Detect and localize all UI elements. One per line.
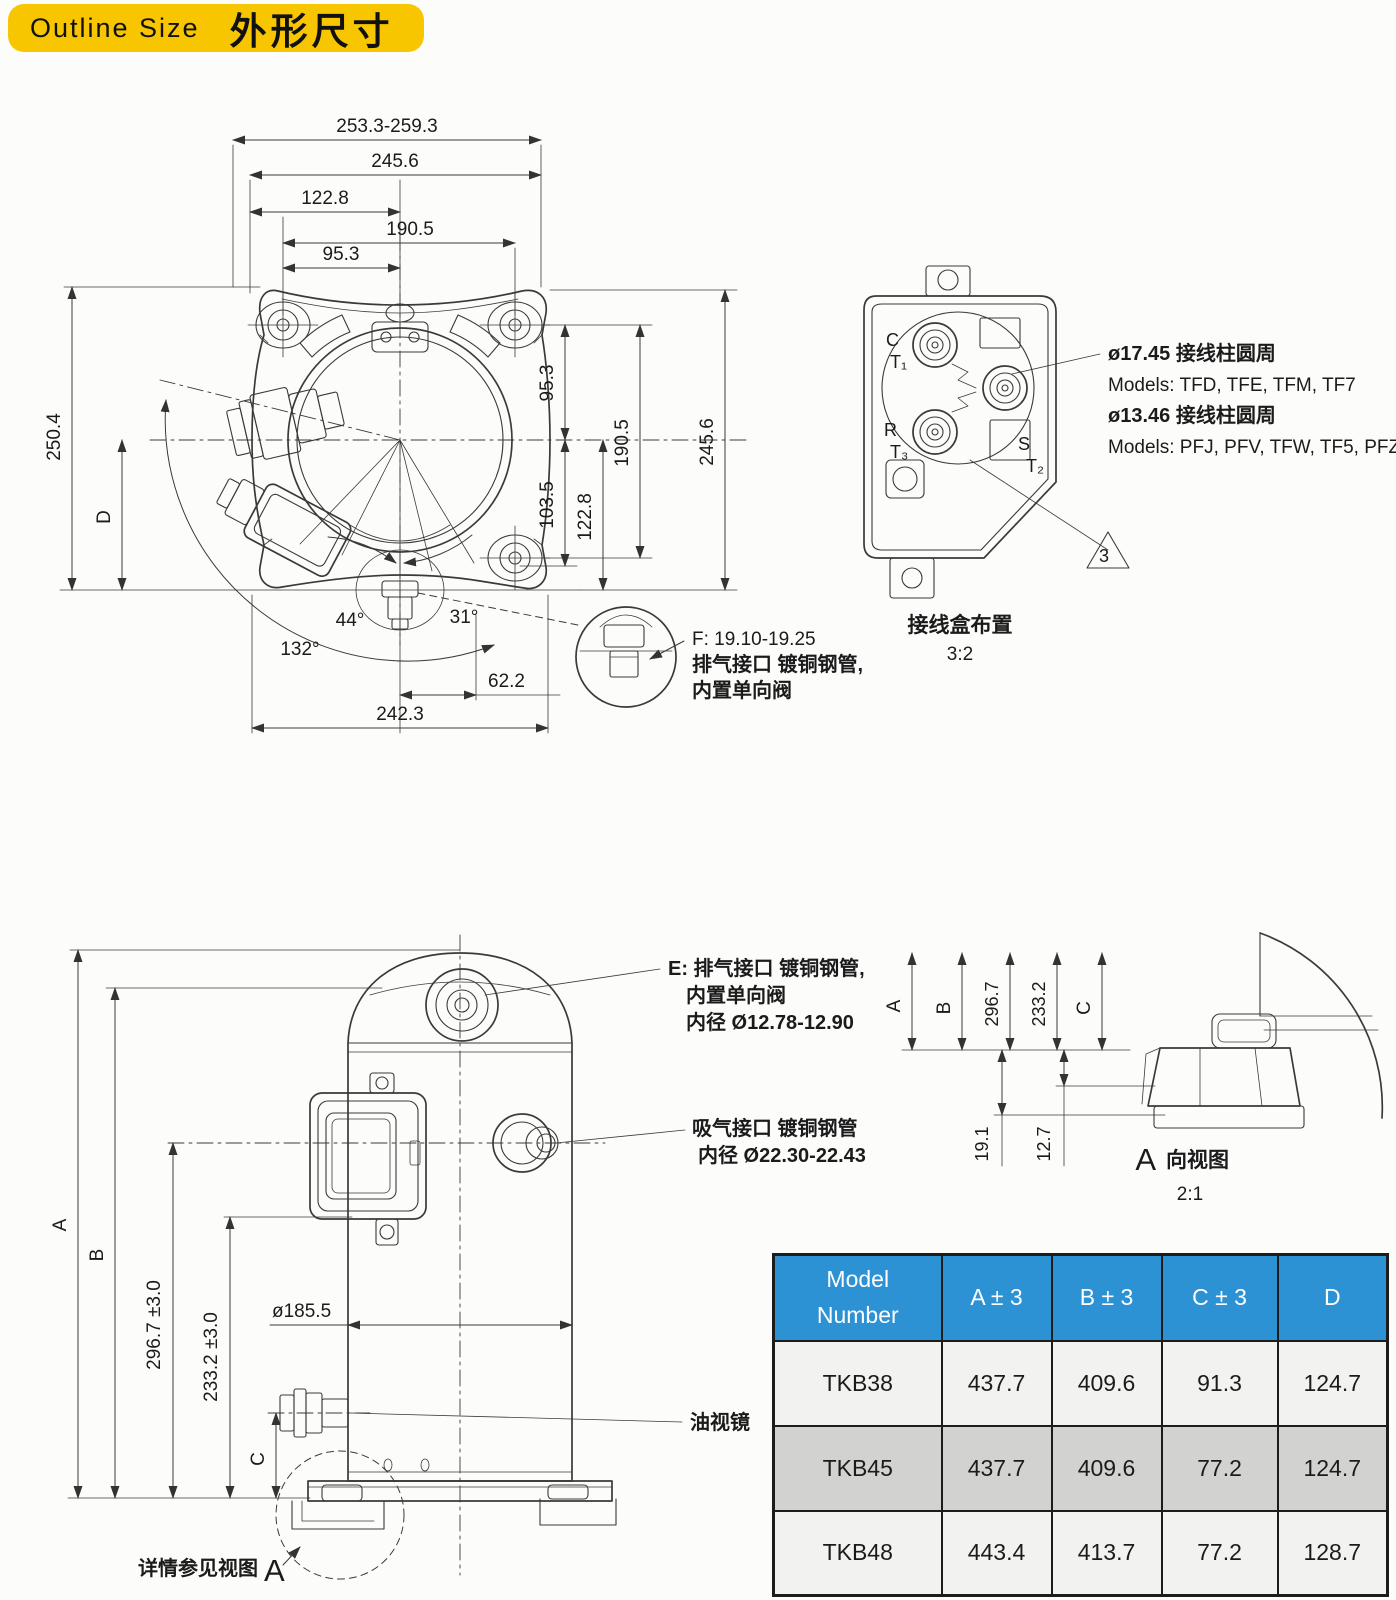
aview-dim-b-label: B: [934, 1002, 955, 1015]
dim-103-5-label: 103.5: [537, 481, 558, 529]
aview-scale-text: 2:1: [1177, 1184, 1203, 1205]
dim-122-8-right-label: 122.8: [575, 493, 596, 541]
foot-detail-drawing: [1142, 933, 1382, 1128]
table-header-model: Model Number: [774, 1255, 942, 1341]
cell-d: 124.7: [1278, 1426, 1388, 1511]
aview-dim-12-7-label: 12.7: [1034, 1126, 1054, 1161]
terminal-box-side: [310, 1073, 426, 1245]
page-title-en: Outline Size: [30, 13, 200, 44]
terminal-note-line1: ø17.45 接线柱圆周: [1108, 341, 1276, 365]
detail-a-reference: 详情参见视图 A: [138, 1451, 404, 1588]
detail-f: F: 19.10-19.25 排气接口 镀铜钢管, 内置单向阀: [418, 593, 863, 707]
terminal-note-line3: ø13.46 接线柱圆周: [1108, 403, 1276, 427]
detail-f-line2: 排气接口 镀铜钢管,: [692, 652, 863, 676]
aview-dim-19-1-label: 19.1: [972, 1126, 992, 1161]
side-dimensions: A B 296.7 ±3.0 233.2 ±3.0 C ø185.5: [50, 950, 572, 1498]
terminal-box-drawing: C T₁ R T₃ S T₂ ø17.45 接线柱圆周 Models: TFD,…: [840, 260, 1396, 690]
side-dim-diameter-label: ø185.5: [272, 1301, 331, 1322]
dim-242-3-label: 242.3: [376, 704, 424, 725]
table-row: TKB38 437.7 409.6 91.3 124.7: [774, 1341, 1388, 1426]
table-header-c: C ± 3: [1162, 1255, 1278, 1341]
aview-caption-text: 向视图: [1166, 1148, 1229, 1172]
terminal-r-label: R: [884, 420, 897, 440]
terminal-notes: ø17.45 接线柱圆周 Models: TFD, TFE, TFM, TF7 …: [1012, 341, 1396, 458]
detail-ref-label: 详情参见视图: [138, 1556, 258, 1580]
terminal-t3-label: T₃: [890, 442, 908, 462]
note-suction-line2: 内径 Ø22.30-22.43: [698, 1143, 866, 1167]
dim-bolt-half-h-label: 95.3: [323, 244, 360, 265]
a-view-caption: A 向视图 2:1: [1135, 1142, 1229, 1205]
cell-model: TKB45: [774, 1426, 942, 1511]
table-header-b: B ± 3: [1052, 1255, 1162, 1341]
terminal-scale-text: 3:2: [947, 644, 973, 665]
terminal-s-label: S: [1018, 434, 1030, 454]
terminal-note-line2: Models: TFD, TFE, TFM, TF7: [1108, 375, 1356, 396]
side-dim-c-label: C: [248, 1452, 269, 1466]
oil-sight-label: 油视镜: [690, 1410, 750, 1434]
cell-a: 443.4: [942, 1511, 1052, 1596]
cell-b: 409.6: [1052, 1426, 1162, 1511]
side-dim-b-label: B: [87, 1249, 108, 1262]
dimension-table: Model Number A ± 3 B ± 3 C ± 3 D TKB38 4…: [772, 1253, 1389, 1597]
top-dimensions: 253.3-259.3 245.6 122.8 190.5 95.3: [233, 116, 541, 325]
top-view-drawing: 253.3-259.3 245.6 122.8 190.5 95.3 250.4…: [20, 85, 870, 765]
dim-plate-height-label: 245.6: [697, 418, 718, 466]
table-row: TKB48 443.4 413.7 77.2 128.7: [774, 1511, 1388, 1596]
detail-ref-letter: A: [264, 1553, 285, 1588]
dim-plate-width-label: 245.6: [371, 151, 419, 172]
terminal-note-line4: Models: PFJ, PFV, TFW, TF5, PFZ: [1108, 437, 1396, 458]
table-row: TKB45 437.7 409.6 77.2 124.7: [774, 1426, 1388, 1511]
cell-c: 91.3: [1162, 1341, 1278, 1426]
dim-overall-height-label: 250.4: [44, 413, 65, 461]
aview-caption-letter: A: [1135, 1142, 1156, 1177]
side-dim-233-label: 233.2 ±3.0: [201, 1312, 222, 1402]
cell-c: 77.2: [1162, 1511, 1278, 1596]
angle-44-label: 44°: [336, 610, 365, 631]
cell-d: 128.7: [1278, 1511, 1388, 1596]
dim-bolt-half-v-label: 95.3: [537, 365, 558, 402]
side-dim-296-label: 296.7 ±3.0: [144, 1280, 165, 1370]
cell-model: TKB38: [774, 1341, 942, 1426]
aview-dim-233-label: 233.2: [1029, 981, 1049, 1026]
terminal-caption-text: 接线盒布置: [908, 613, 1013, 637]
table-header-a: A ± 3: [942, 1255, 1052, 1341]
side-dim-a-label: A: [50, 1218, 71, 1231]
cell-c: 77.2: [1162, 1426, 1278, 1511]
aview-dim-a-label: A: [884, 999, 905, 1012]
angle-31-label: 31°: [450, 607, 479, 628]
base-and-feet: [292, 1481, 616, 1529]
aview-dim-c-label: C: [1074, 1001, 1095, 1015]
dim-overall-width-label: 253.3-259.3: [336, 116, 437, 137]
cell-a: 437.7: [942, 1426, 1052, 1511]
cell-d: 124.7: [1278, 1341, 1388, 1426]
sight-glass-box-top: [209, 464, 354, 579]
cell-b: 409.6: [1052, 1341, 1162, 1426]
flag-3-label: 3: [1099, 546, 1109, 566]
detail-f-line3: 内置单向阀: [692, 678, 792, 702]
bolt-bottom-right: [480, 526, 550, 590]
dim-left-to-center-label: 122.8: [301, 188, 349, 209]
dim-d-label: D: [94, 510, 115, 524]
dim-62-2-label: 62.2: [488, 671, 525, 692]
detail-f-line1: F: 19.10-19.25: [692, 629, 816, 650]
aview-dim-296-label: 296.7: [982, 981, 1002, 1026]
cell-model: TKB48: [774, 1511, 942, 1596]
note-e-line2: 内置单向阀: [686, 983, 786, 1007]
table-header-row: Model Number A ± 3 B ± 3 C ± 3 D: [774, 1255, 1388, 1341]
dim-bolt-span-h-label: 190.5: [386, 219, 434, 240]
terminal-t1-label: T₁: [890, 352, 907, 372]
terminal-caption: 接线盒布置 3:2: [908, 613, 1013, 665]
table-header-d: D: [1278, 1255, 1388, 1341]
a-view-dimensions: A B 296.7 233.2 C 19.1 12.7: [884, 953, 1165, 1166]
note-suction-line1: 吸气接口 镀铜钢管: [692, 1116, 858, 1140]
angle-dimensions: 44° 31° 132°: [165, 400, 494, 661]
datasheet-page: Outline Size 外形尺寸: [0, 0, 1396, 1600]
note-e-line3: 内径 Ø12.78-12.90: [686, 1010, 854, 1034]
cell-b: 413.7: [1052, 1511, 1162, 1596]
right-dimensions: 95.3 103.5 122.8 190.5 245.6: [520, 290, 737, 590]
flag-3: 3: [970, 460, 1129, 568]
cell-a: 437.7: [942, 1341, 1052, 1426]
suction-fitting-top: [224, 376, 348, 466]
page-title: Outline Size 外形尺寸: [8, 4, 424, 52]
terminal-t2-label: T₂: [1026, 456, 1044, 476]
terminal-c-label: C: [886, 330, 899, 350]
dim-bolt-span-v-label: 190.5: [612, 419, 633, 467]
note-e-line1: E: 排气接口 镀铜钢管,: [668, 956, 865, 980]
a-view-drawing: A B 296.7 233.2 C 19.1 12.7: [860, 918, 1396, 1218]
page-title-zh: 外形尺寸: [230, 1, 394, 55]
angle-132-label: 132°: [280, 639, 319, 660]
